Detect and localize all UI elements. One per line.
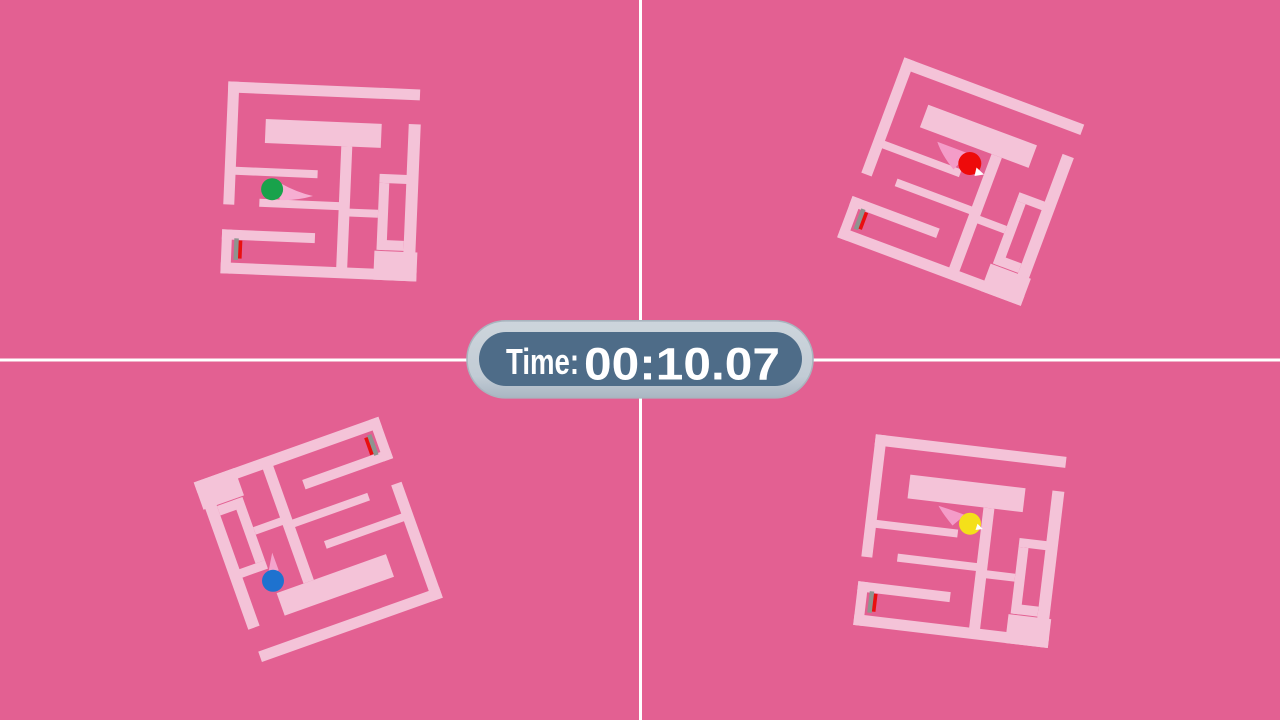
svg-text:00:10.07: 00:10.07	[584, 339, 780, 390]
svg-text:Time:: Time:	[506, 341, 579, 382]
